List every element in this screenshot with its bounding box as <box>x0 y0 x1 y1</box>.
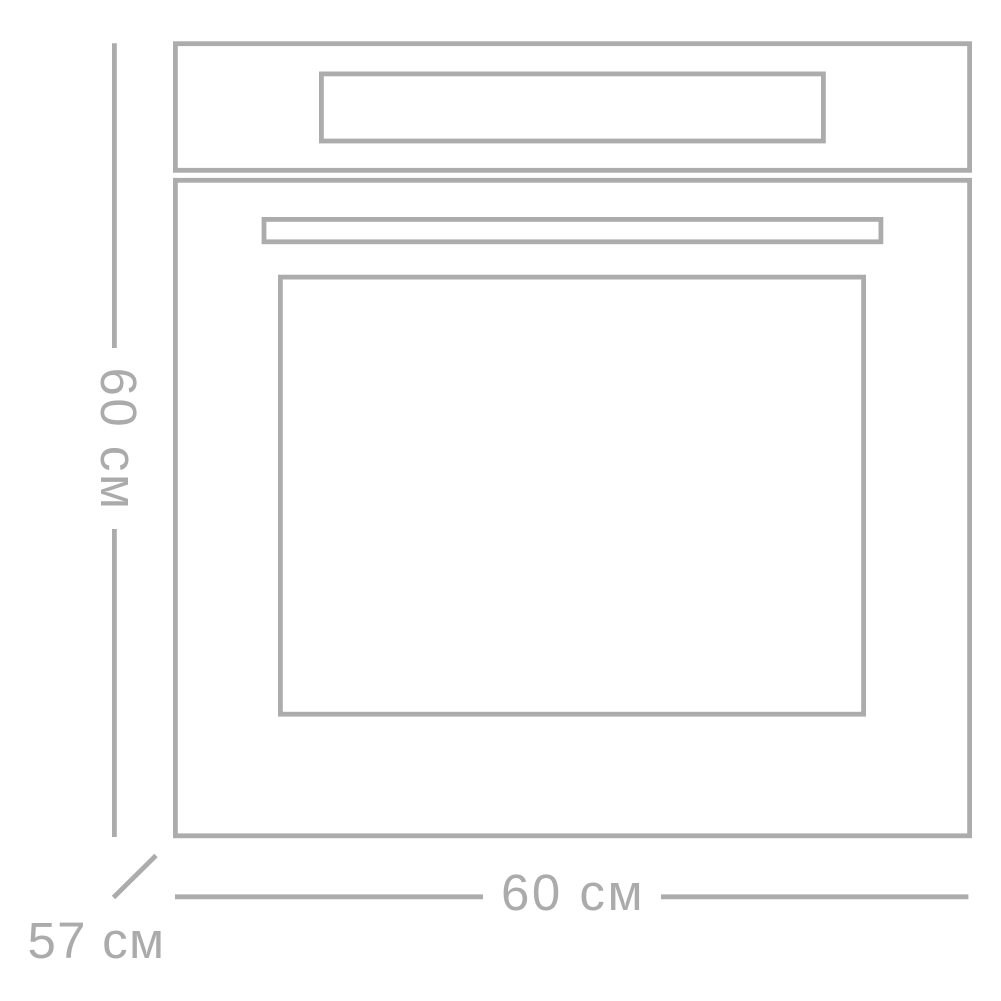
svg-text:60 см: 60 см <box>90 368 147 510</box>
svg-text:57 см: 57 см <box>28 912 165 969</box>
svg-text:60 см: 60 см <box>501 864 643 921</box>
